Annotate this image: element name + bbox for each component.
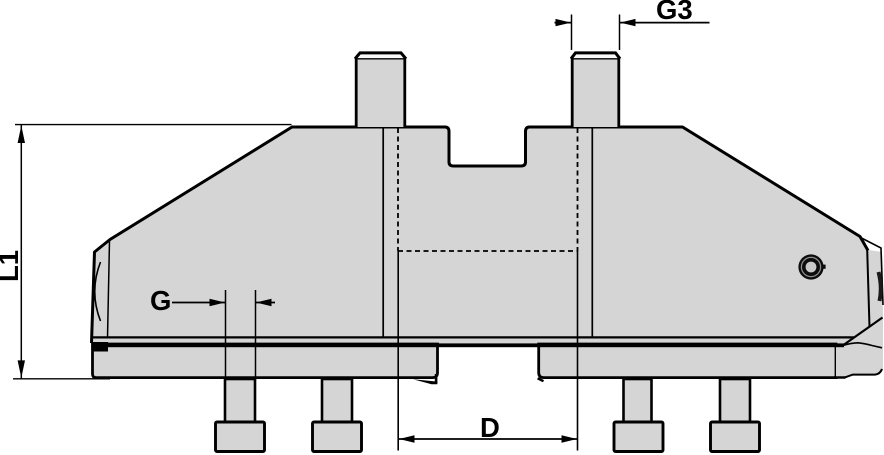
svg-text:G3: G3 bbox=[656, 0, 693, 25]
svg-text:D: D bbox=[480, 412, 500, 443]
svg-text:L1: L1 bbox=[0, 250, 24, 282]
svg-text:G: G bbox=[150, 285, 171, 316]
